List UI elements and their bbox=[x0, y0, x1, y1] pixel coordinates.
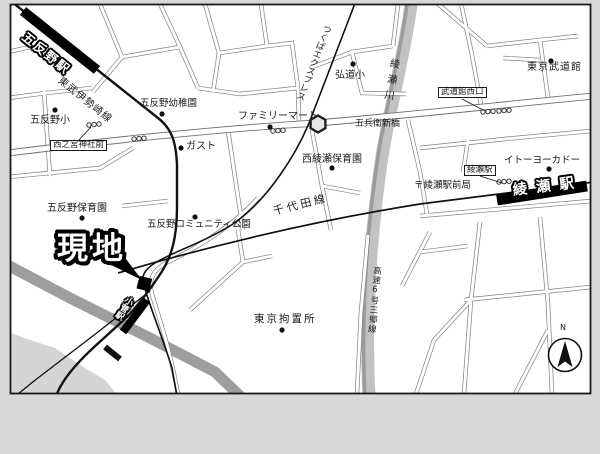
busstop-label-budokan-west: 武道館西口 bbox=[438, 87, 487, 98]
bus-stop-icon bbox=[132, 136, 146, 141]
busstop-label-nishinomiya-jinja-mae: 西之宮神社前 bbox=[50, 140, 107, 151]
poi-label-ayase-post-office: 〒綾瀬駅前局 bbox=[414, 181, 471, 191]
poi-label-gotanno-elementary: 五反野小 bbox=[30, 116, 70, 127]
poi-label-tokyo-budokan: 東京武道館 bbox=[527, 63, 582, 74]
bus-stop-icon bbox=[271, 128, 285, 133]
compass-n-label: N bbox=[560, 324, 566, 332]
compass-icon bbox=[549, 339, 582, 372]
map-canvas bbox=[0, 0, 600, 454]
poi-label-gotanno-kindergarten: 五反野幼稚園 bbox=[140, 99, 197, 109]
poi-label-kodo-elementary: 弘道小 bbox=[335, 71, 365, 82]
busstop-label-ayase-eki: 綾瀬駅 bbox=[464, 165, 496, 176]
poi-label-nishiayase-nursery: 西綾瀬保育園 bbox=[302, 155, 362, 166]
poi-label-familymart: ファミリーマート bbox=[238, 112, 318, 123]
bus-stop-icon bbox=[497, 108, 511, 113]
site-label: 現地 bbox=[57, 233, 127, 266]
poi-label-gotanno-nursery: 五反野保育園 bbox=[47, 204, 107, 215]
poi-label-tokyo-detention-house: 東京拘置所 bbox=[254, 314, 317, 325]
poi-label-ito-yokado: イトーヨーカドー bbox=[504, 156, 580, 166]
poi-label-gusto: ガスト bbox=[186, 142, 216, 153]
bus-stop-icon bbox=[87, 122, 101, 127]
map-screenshot: 五反野駅 綾瀬駅 小菅駅 東武伊勢崎線 つくばエクスプレス 千代田線 綾瀬川 高… bbox=[0, 0, 600, 454]
bridge-label-gohei-shinbashi: 五兵衛新橋 bbox=[355, 120, 400, 129]
poi-label-gotanno-community-park: 五反野コミュニティ公園 bbox=[147, 220, 251, 230]
